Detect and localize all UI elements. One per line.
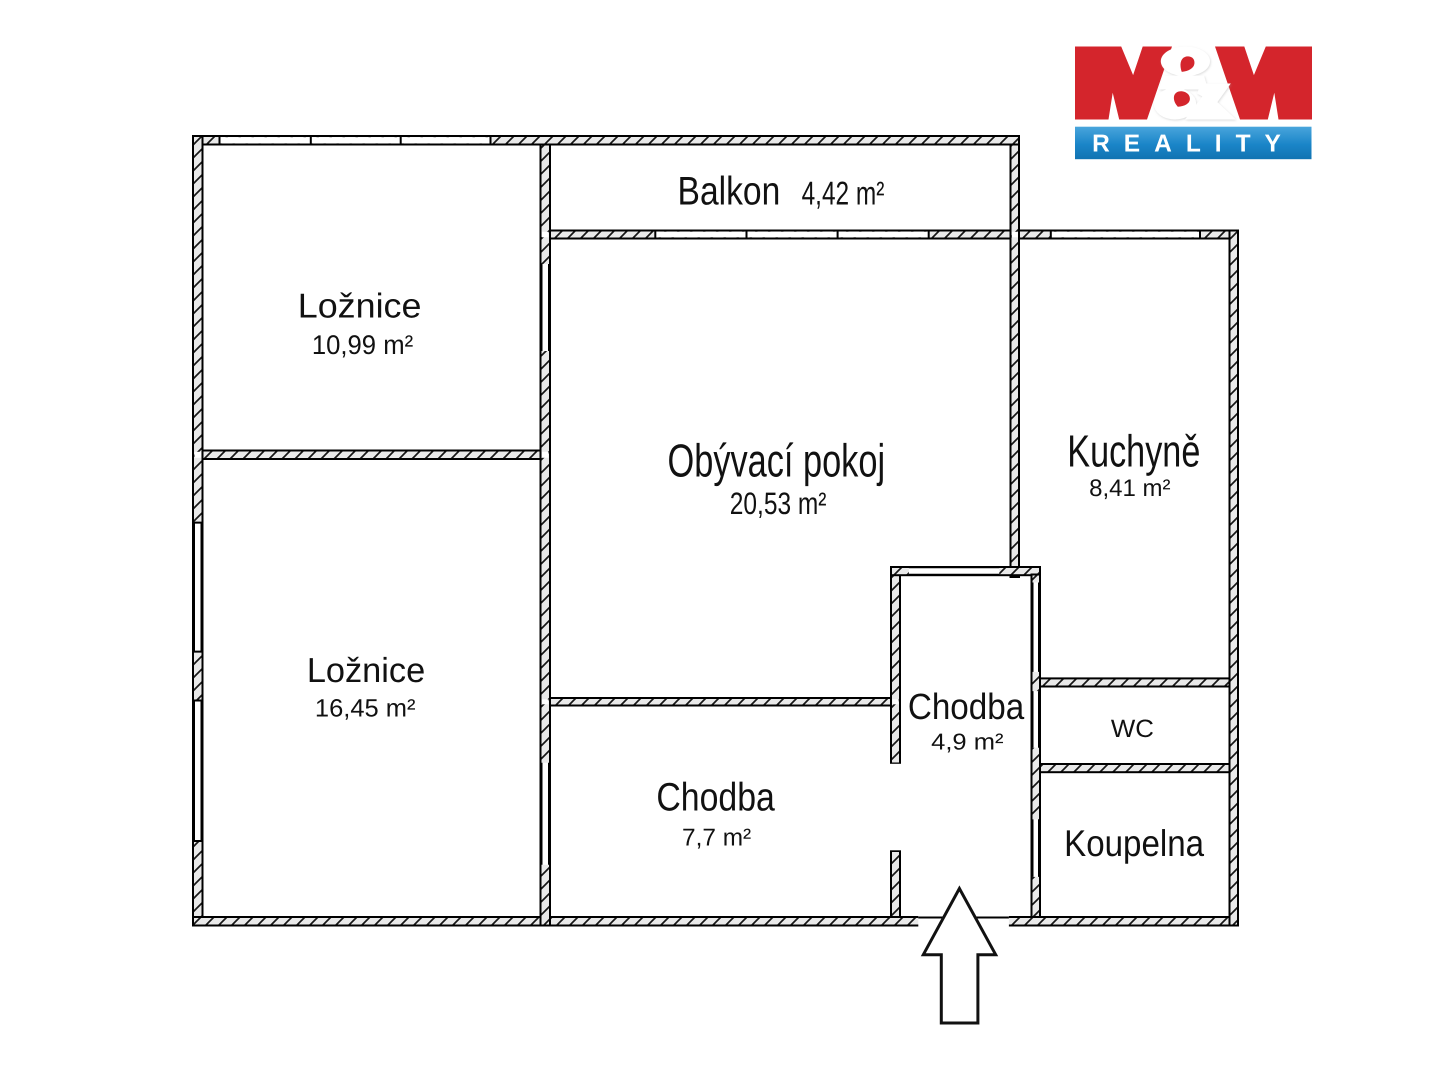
svg-text:Ložnice: Ložnice [298,288,422,326]
svg-text:Chodba: Chodba [908,686,1025,727]
svg-text:20,53 m²: 20,53 m² [730,486,827,521]
svg-text:Chodba: Chodba [656,776,775,820]
svg-text:Obývací pokoj: Obývací pokoj [668,434,886,486]
svg-text:Ložnice: Ložnice [307,652,425,690]
svg-text:Koupelna: Koupelna [1064,822,1204,864]
svg-text:REALITY: REALITY [1092,131,1295,158]
svg-text:16,45 m²: 16,45 m² [315,694,416,722]
svg-text:Balkon: Balkon [678,170,781,214]
svg-text:4,42 m²: 4,42 m² [802,175,885,212]
svg-text:Kuchyně: Kuchyně [1067,425,1200,476]
svg-text:8,41 m²: 8,41 m² [1089,475,1170,502]
svg-text:10,99 m²: 10,99 m² [312,330,413,360]
svg-text:4,9 m²: 4,9 m² [931,728,1004,754]
svg-text:7,7 m²: 7,7 m² [682,824,751,851]
svg-text:WC: WC [1111,715,1154,743]
